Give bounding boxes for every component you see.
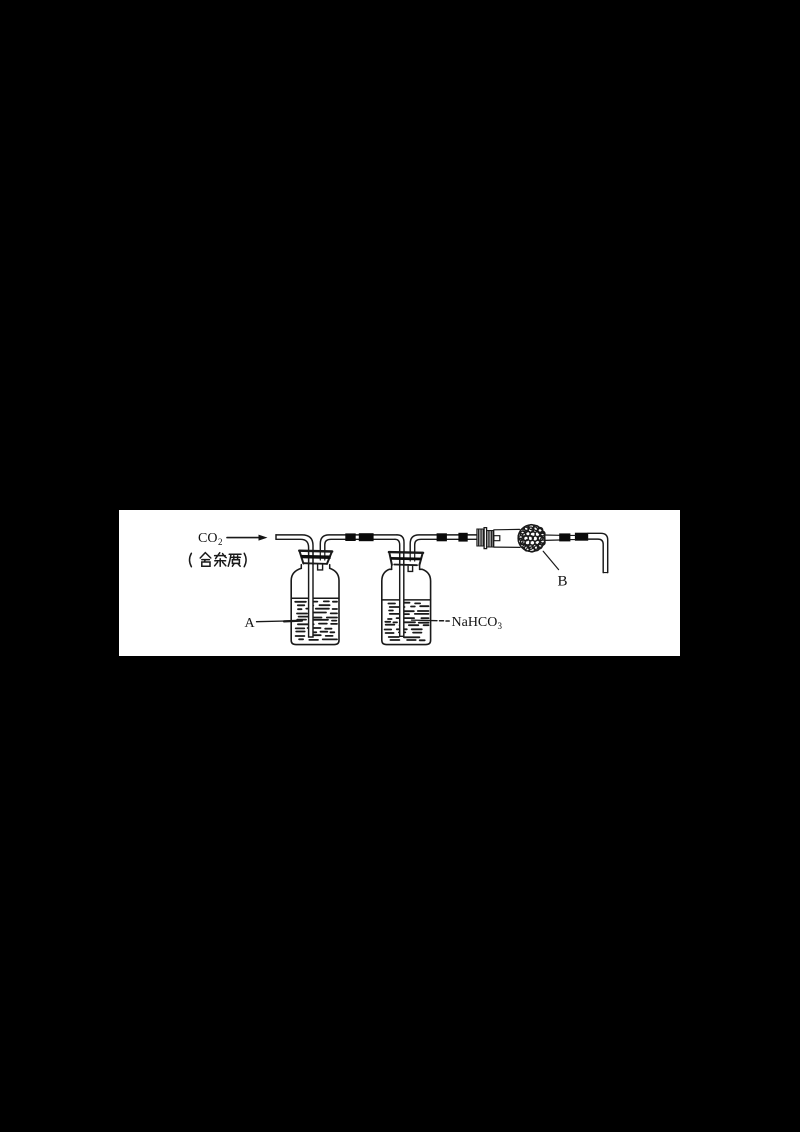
svg-text:3: 3	[498, 621, 503, 631]
svg-text:NaHCO: NaHCO	[452, 615, 498, 630]
svg-text:B: B	[558, 574, 568, 590]
svg-text:CO: CO	[198, 531, 217, 546]
svg-text:A: A	[245, 616, 256, 631]
svg-text:2: 2	[218, 537, 223, 547]
